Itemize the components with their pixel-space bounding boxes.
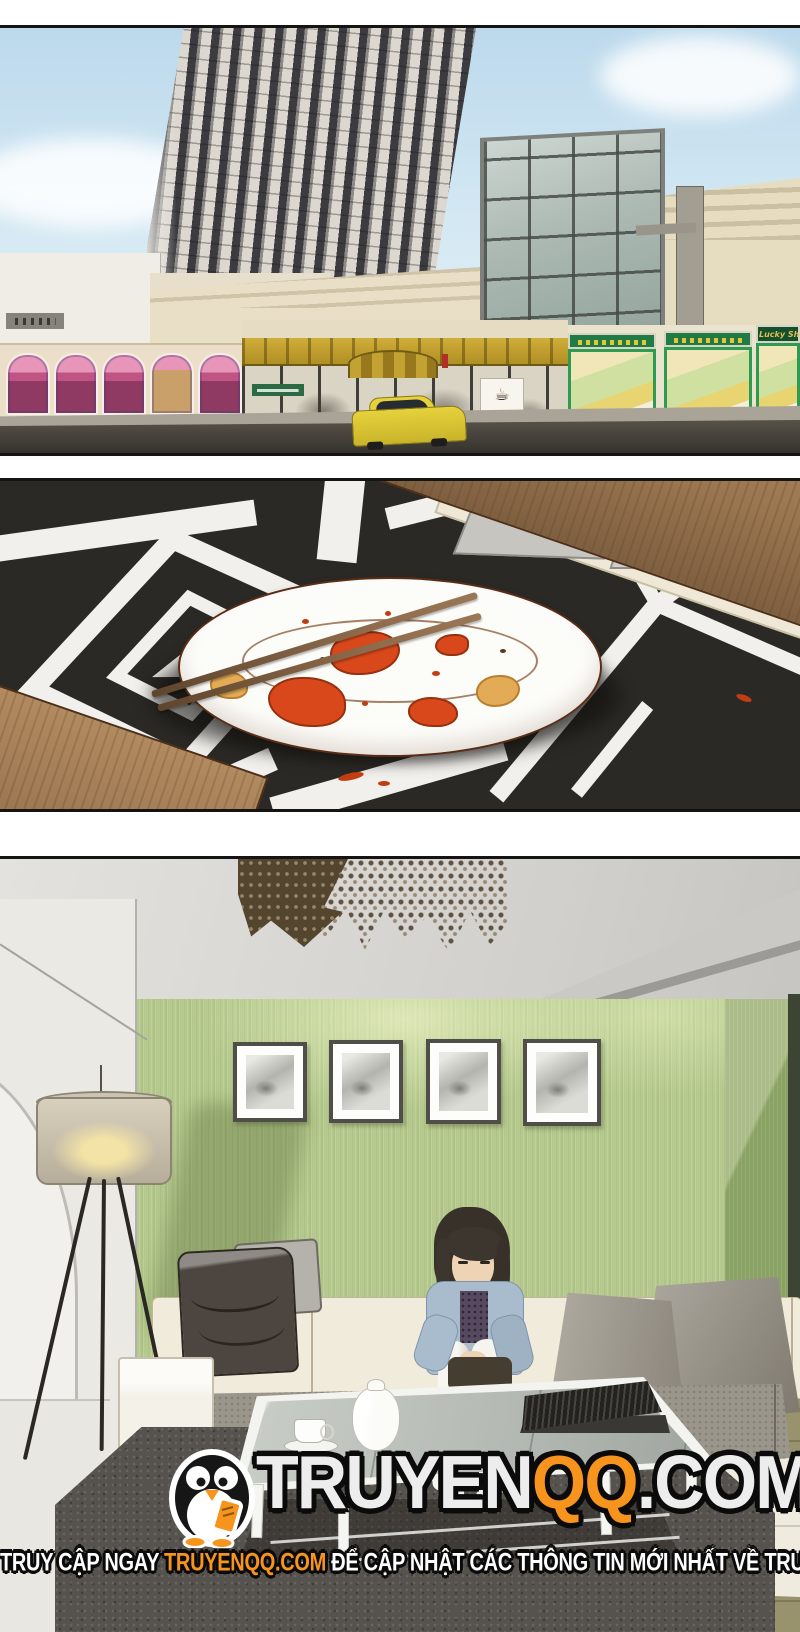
sauce-speck [385, 611, 391, 616]
shop-sign-text-smudge [578, 340, 645, 345]
framed-print [342, 1053, 390, 1110]
coffee-cup-sign: ☕ [480, 378, 524, 412]
woman-blouse [460, 1291, 488, 1343]
framed-print [536, 1052, 588, 1113]
woman-eye [458, 1261, 468, 1264]
sauce-speck [500, 649, 506, 653]
lucky-shop-sign-board: Lucky Shop [756, 325, 800, 343]
penguin-logo [166, 1440, 258, 1548]
boutique-arch-window [102, 353, 146, 415]
framed-print [439, 1052, 488, 1111]
woman-eye [480, 1261, 490, 1264]
panel-city-street: ☕ Lucky Shop [0, 25, 800, 456]
site-logo-text: TRUYENQQ.COM [256, 1441, 800, 1524]
site-logo-truyen: TRUYEN [256, 1440, 532, 1524]
sauce-speck [362, 701, 368, 706]
sauce-splash [378, 781, 390, 786]
shop-sign-board [664, 331, 752, 347]
site-logo-qq: QQ [532, 1440, 637, 1524]
manga-page: ☕ Lucky Shop [0, 0, 800, 1632]
boutique-entrance [150, 353, 194, 415]
sauce-smear [435, 634, 469, 656]
taxi-wheel [431, 438, 447, 447]
boutique-arch-window [54, 353, 98, 415]
tagline-link: TRUYENQQ.COM [164, 1549, 326, 1577]
site-watermark: TRUYENQQ.COM TRUY CẬP NGAY TRUYENQQ.COM … [0, 1438, 800, 1608]
shop-sign-board [568, 333, 656, 349]
lucky-shop-sign-text: Lucky Shop [759, 330, 799, 339]
picture-frame [233, 1042, 307, 1122]
picture-frame [426, 1039, 501, 1124]
yellow-taxi [351, 393, 466, 451]
taxi-wheel [367, 441, 383, 450]
cafe-entrance-canopy [348, 350, 438, 378]
site-tagline: TRUY CẬP NGAY TRUYENQQ.COM ĐỂ CẬP NHẬT C… [0, 1549, 800, 1578]
cloud [600, 36, 800, 116]
left-building-sign [6, 313, 64, 329]
boutique-arch-window [6, 353, 50, 415]
sauce-speck [302, 619, 309, 624]
framed-print [246, 1055, 294, 1109]
cafe-green-sign [252, 384, 304, 396]
teapot-lid [367, 1379, 385, 1391]
site-logo-com: .COM [637, 1440, 800, 1524]
sauce-smear [268, 677, 346, 727]
shop-sign-text-smudge [674, 338, 741, 343]
food-scrap [476, 675, 520, 707]
sign-pillar [676, 186, 704, 338]
sauce-smear [408, 697, 458, 727]
taxi-body [351, 405, 467, 447]
boutique-arch-window [198, 353, 242, 415]
bag-seam [198, 1307, 286, 1348]
dark-wall-column [788, 994, 800, 1329]
sauce-speck [432, 671, 440, 676]
tagline-prefix: TRUY CẬP NGAY [0, 1549, 164, 1577]
picture-frame [329, 1040, 403, 1123]
wall-corner-line [0, 944, 147, 1041]
panel-empty-plate [0, 478, 800, 812]
floor-lamp-shade [36, 1097, 172, 1185]
coffee-cup-icon: ☕ [494, 385, 509, 405]
picture-frame [523, 1039, 601, 1126]
tagline-suffix: ĐỂ CẬP NHẬT CÁC THÔNG TIN MỚI NHẤT VỀ TR… [326, 1549, 800, 1577]
cafe-banner [442, 354, 448, 368]
